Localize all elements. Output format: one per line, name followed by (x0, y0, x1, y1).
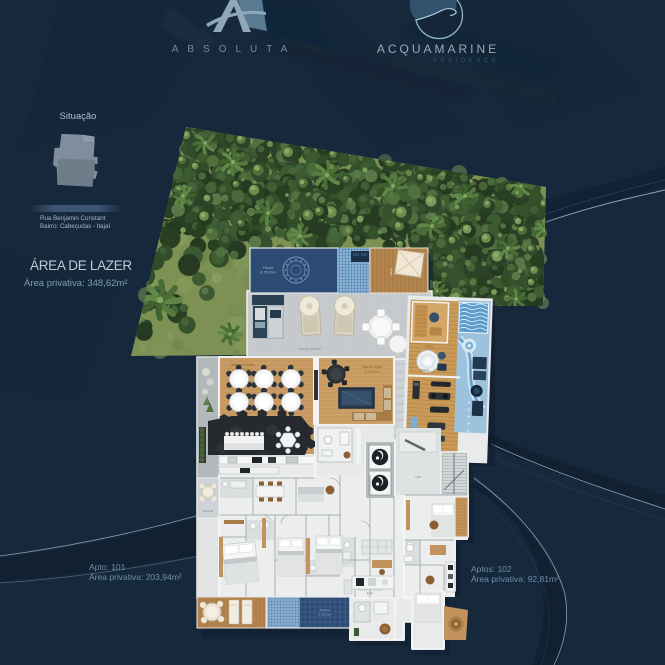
svg-text:Bairro: Cabeçudas - Itajaí: Bairro: Cabeçudas - Itajaí (40, 223, 110, 230)
svg-text:Estar: Estar (367, 591, 374, 595)
svg-text:Deck: Deck (389, 268, 393, 275)
svg-text:Área privativa: 203,94m²: Área privativa: 203,94m² (89, 572, 182, 582)
svg-text:Área privativa: 348,62m²: Área privativa: 348,62m² (24, 278, 128, 289)
svg-text:Rua Benjamin Constant: Rua Benjamin Constant (40, 215, 106, 222)
svg-text:Salão de Festas: Salão de Festas (231, 363, 255, 367)
svg-text:Hall: Hall (415, 475, 421, 479)
svg-text:Situação: Situação (60, 111, 97, 122)
svg-text:ACQUAMARINE: ACQUAMARINE (377, 42, 499, 56)
svg-text:A: 46,60m²: A: 46,60m² (365, 370, 380, 374)
svg-text:Piscina: Piscina (320, 608, 330, 612)
svg-text:Sala de Jogos: Sala de Jogos (362, 365, 383, 369)
svg-text:A: 55,00m²: A: 55,00m² (260, 271, 276, 275)
svg-text:Área privativa: 92,81m²: Área privativa: 92,81m² (471, 574, 559, 584)
svg-text:Varanda: Varanda (203, 509, 214, 513)
svg-text:Piscina: Piscina (263, 266, 274, 270)
svg-text:A: 22,70m²: A: 22,70m² (318, 613, 332, 617)
svg-text:ÁREA DE LAZER: ÁREA DE LAZER (30, 258, 132, 273)
svg-text:Fitness: Fitness (419, 368, 429, 372)
svg-text:Jardim: Jardim (205, 394, 209, 404)
svg-text:Lounge Externo: Lounge Externo (299, 347, 322, 351)
svg-text:RESIDENCE: RESIDENCE (433, 58, 500, 64)
svg-text:ABSOLUTA: ABSOLUTA (172, 44, 297, 55)
svg-text:Sauna: Sauna (425, 344, 434, 348)
svg-text:Apto: 101: Apto: 101 (89, 562, 126, 572)
svg-text:Aptos: 102: Aptos: 102 (471, 564, 512, 574)
